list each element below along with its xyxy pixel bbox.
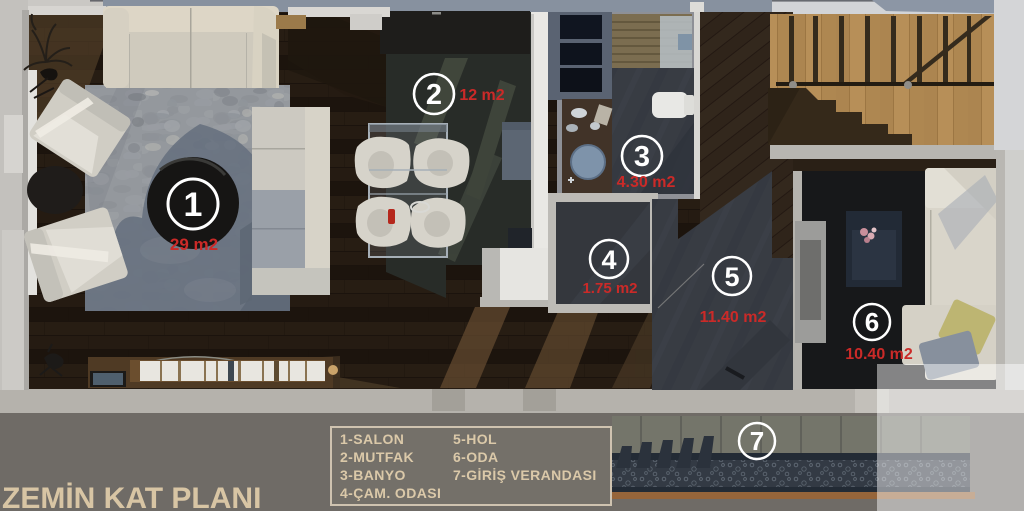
svg-text:11.40 m2: 11.40 m2 <box>700 309 767 326</box>
svg-text:1: 1 <box>184 186 203 224</box>
svg-text:4-ÇAM. ODASI: 4-ÇAM. ODASI <box>340 485 441 501</box>
svg-text:1.75 m2: 1.75 m2 <box>582 280 637 297</box>
svg-text:1-SALON: 1-SALON <box>340 431 404 447</box>
svg-text:7: 7 <box>750 426 764 456</box>
svg-text:3-BANYO: 3-BANYO <box>340 467 406 483</box>
svg-text:2-MUTFAK: 2-MUTFAK <box>340 449 414 465</box>
svg-text:6: 6 <box>865 307 879 337</box>
svg-text:2: 2 <box>426 79 442 111</box>
svg-text:3: 3 <box>634 141 650 173</box>
svg-text:4: 4 <box>601 245 616 275</box>
svg-text:4.30 m2: 4.30 m2 <box>617 174 676 191</box>
svg-text:5: 5 <box>724 262 739 292</box>
svg-text:ZEMİN KAT PLANI: ZEMİN KAT PLANI <box>2 482 261 511</box>
svg-text:5-HOL: 5-HOL <box>453 431 497 447</box>
svg-text:6-ODA: 6-ODA <box>453 449 499 465</box>
svg-text:12 m2: 12 m2 <box>459 87 504 104</box>
svg-text:29 m2: 29 m2 <box>170 235 218 254</box>
svg-text:10.40 m2: 10.40 m2 <box>845 346 913 363</box>
svg-text:7-GİRİŞ VERANDASI: 7-GİRİŞ VERANDASI <box>453 467 597 483</box>
